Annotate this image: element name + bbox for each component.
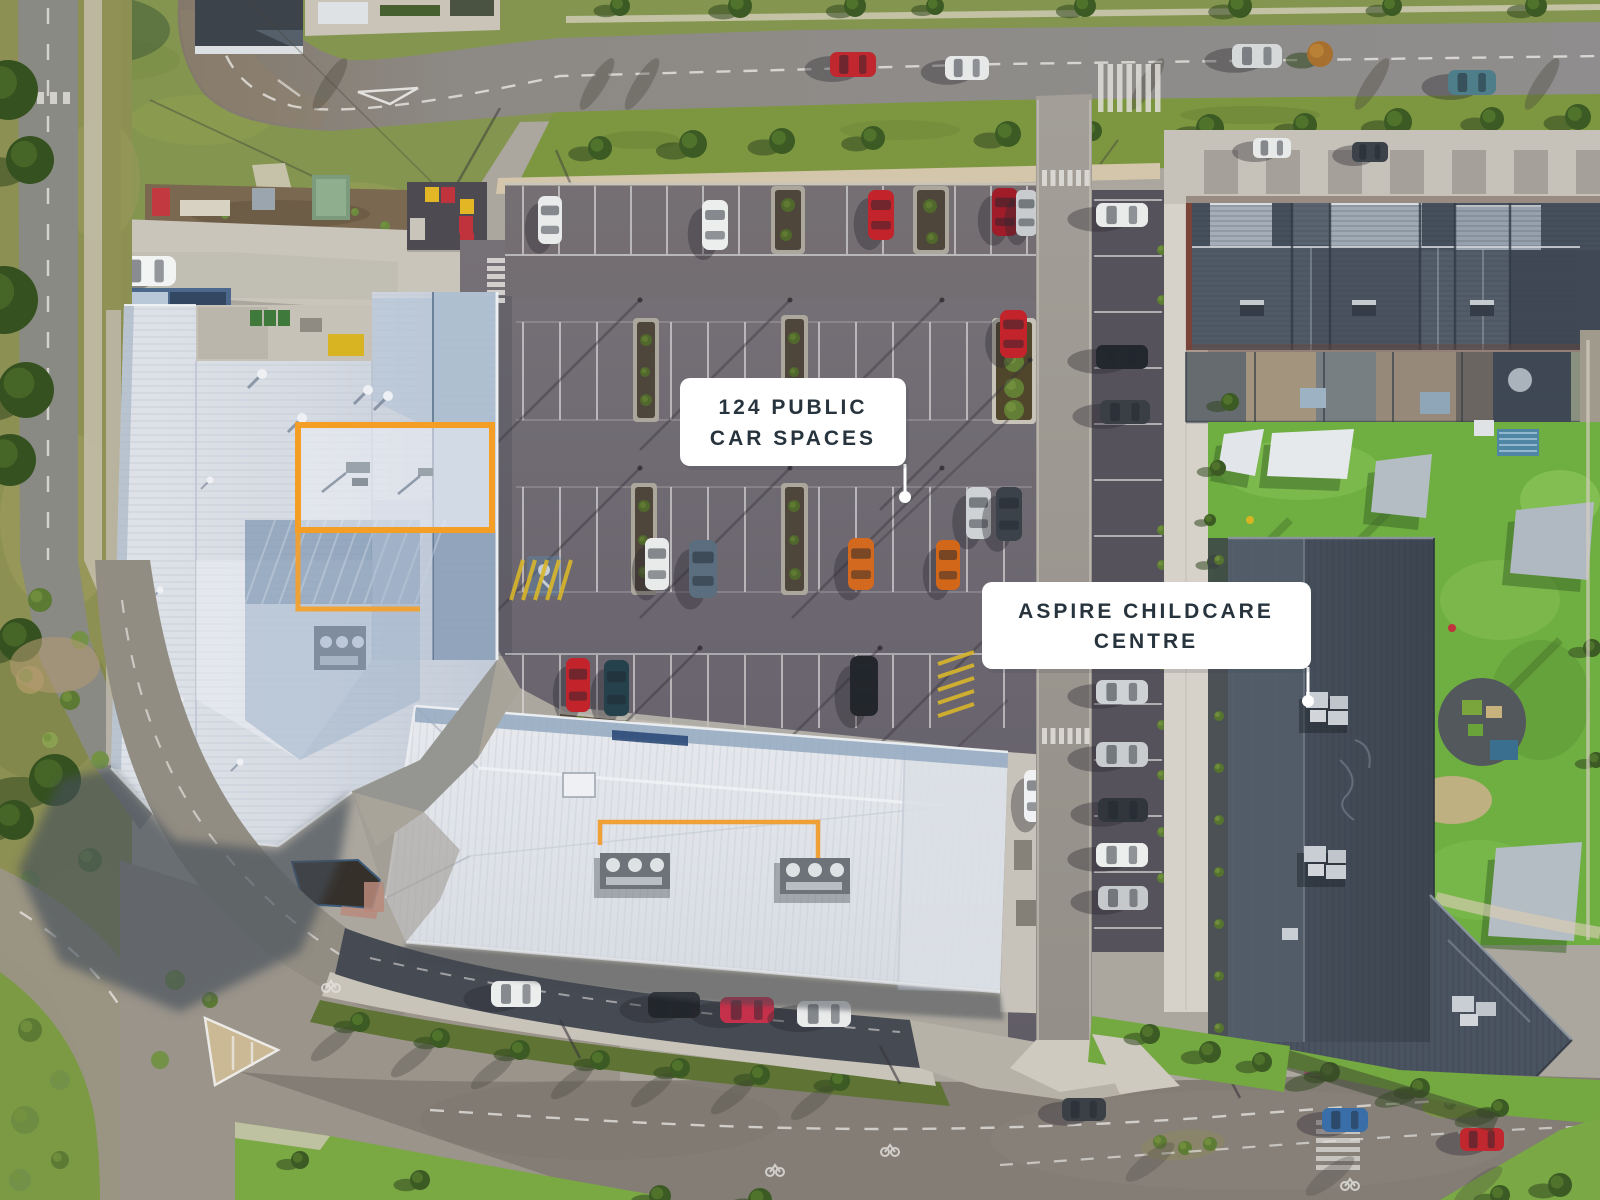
svg-text:124 PUBLIC: 124 PUBLIC bbox=[718, 396, 867, 419]
svg-text:CAR SPACES: CAR SPACES bbox=[710, 427, 876, 450]
svg-text:CENTRE: CENTRE bbox=[1094, 630, 1198, 653]
svg-text:ASPIRE CHILDCARE: ASPIRE CHILDCARE bbox=[1018, 600, 1274, 623]
